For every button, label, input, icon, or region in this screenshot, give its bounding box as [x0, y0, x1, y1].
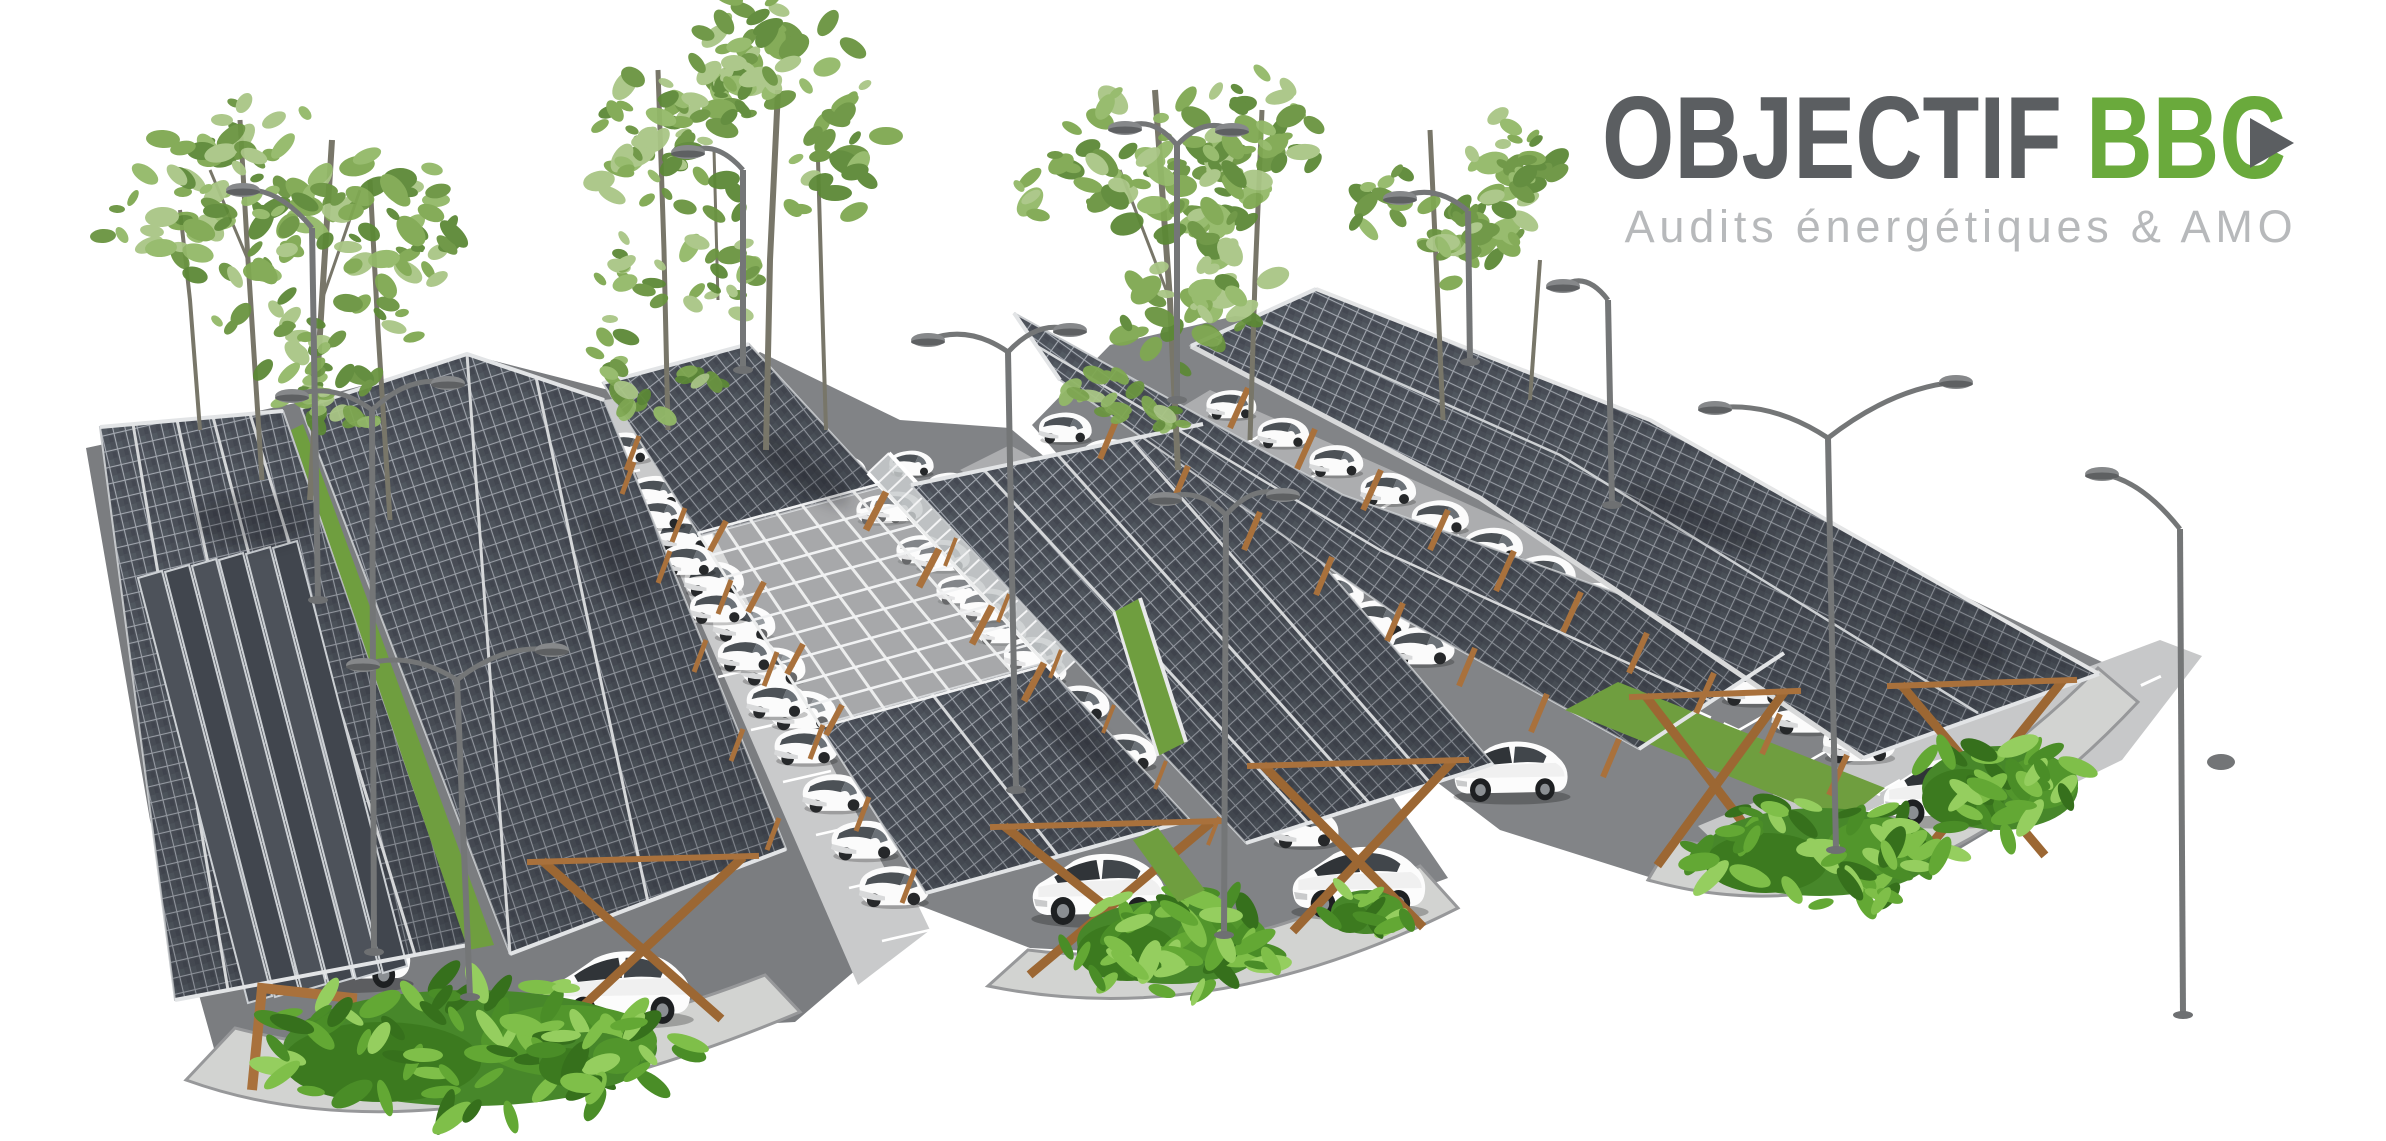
svg-text:OBJECTIF: OBJECTIF	[1602, 72, 2062, 203]
svg-text:Audits énergétiques & AMO: Audits énergétiques & AMO	[1625, 201, 2298, 252]
